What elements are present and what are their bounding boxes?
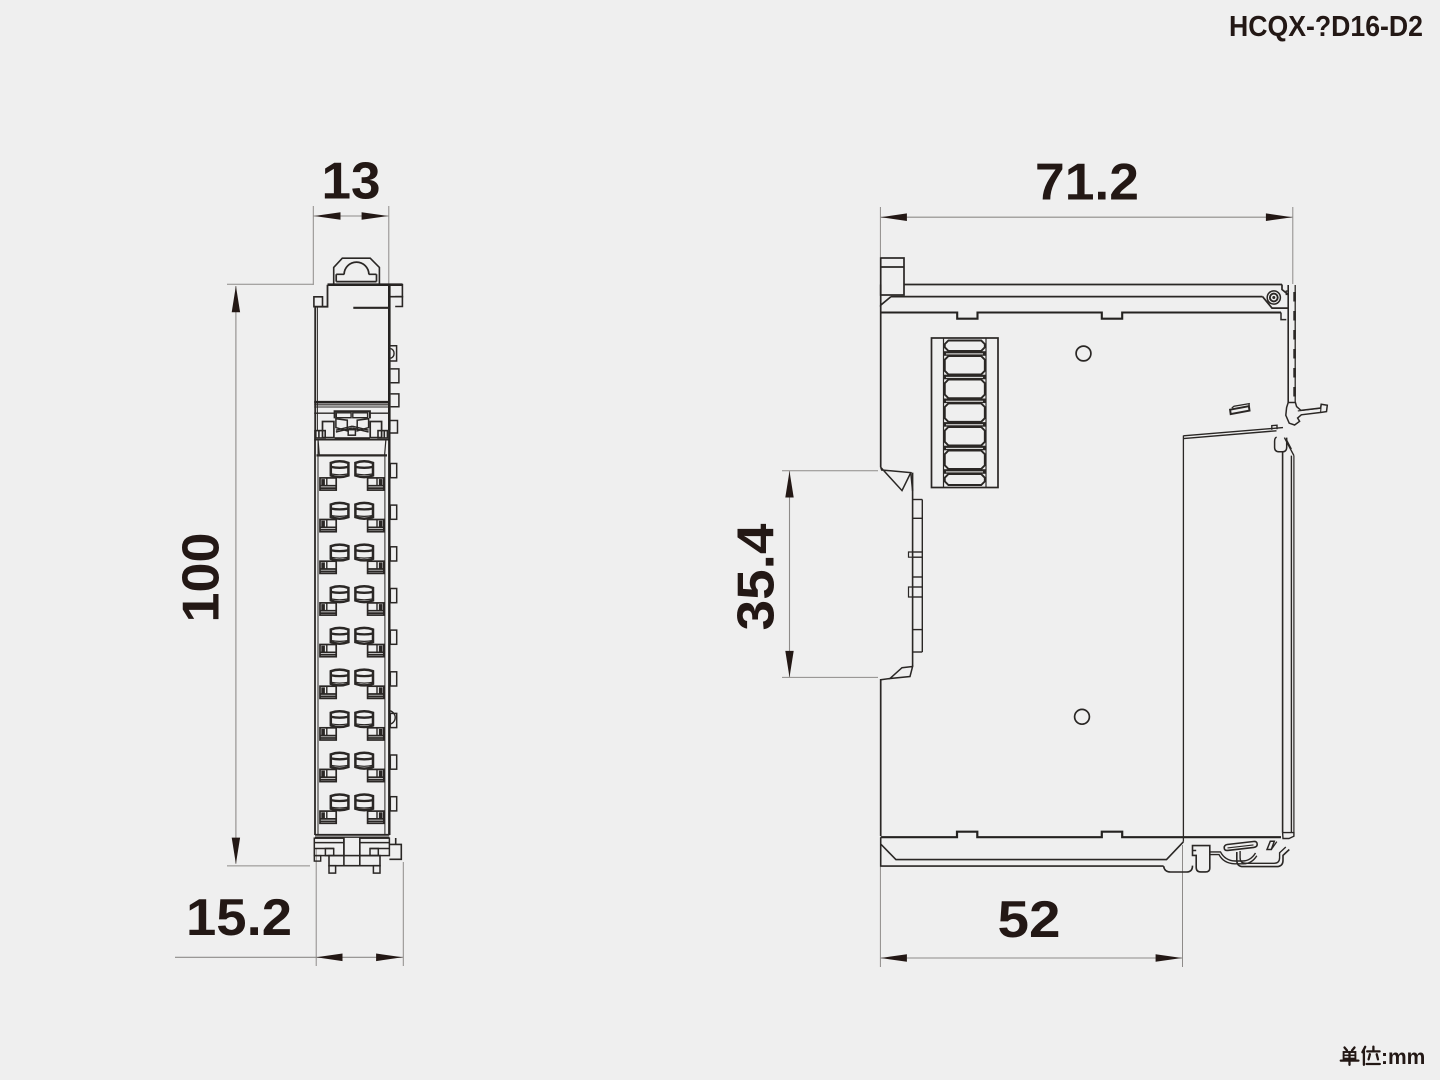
svg-text:52: 52 (998, 891, 1061, 949)
svg-text:100: 100 (173, 533, 231, 623)
svg-text::mm: :mm (1381, 1046, 1425, 1069)
svg-text:15.2: 15.2 (186, 889, 292, 947)
svg-text:HCQX-?D16-D2: HCQX-?D16-D2 (1229, 11, 1423, 43)
svg-text:71.2: 71.2 (1035, 154, 1139, 212)
svg-text:35.4: 35.4 (728, 523, 786, 630)
svg-text:13: 13 (322, 153, 381, 211)
